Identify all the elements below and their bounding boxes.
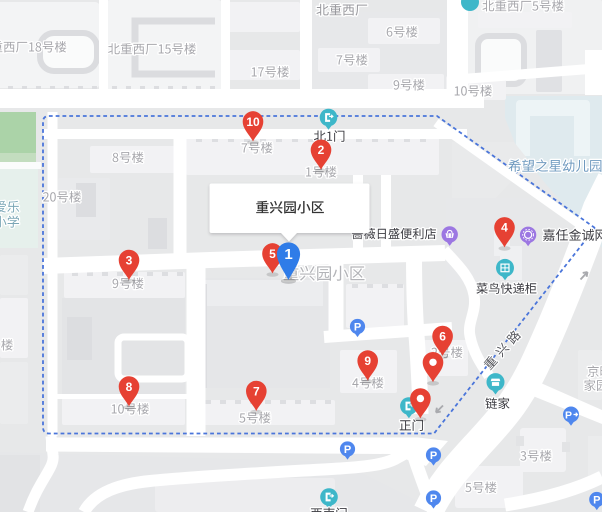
svg-text:P: P [430, 450, 437, 462]
svg-text:2: 2 [318, 143, 325, 157]
svg-text:6: 6 [439, 329, 446, 343]
svg-text:P: P [344, 444, 351, 456]
svg-text:10: 10 [246, 115, 260, 129]
svg-text:7: 7 [253, 384, 260, 398]
svg-text:3: 3 [126, 253, 133, 267]
svg-text:4: 4 [501, 221, 508, 235]
svg-text:P: P [430, 493, 437, 505]
svg-text:1: 1 [284, 246, 292, 263]
svg-text:5: 5 [269, 247, 276, 261]
svg-text:9: 9 [364, 354, 371, 368]
svg-text:P: P [593, 494, 600, 506]
svg-text:P: P [354, 321, 361, 333]
svg-text:8: 8 [126, 380, 133, 394]
svg-text:P: P [565, 409, 572, 421]
